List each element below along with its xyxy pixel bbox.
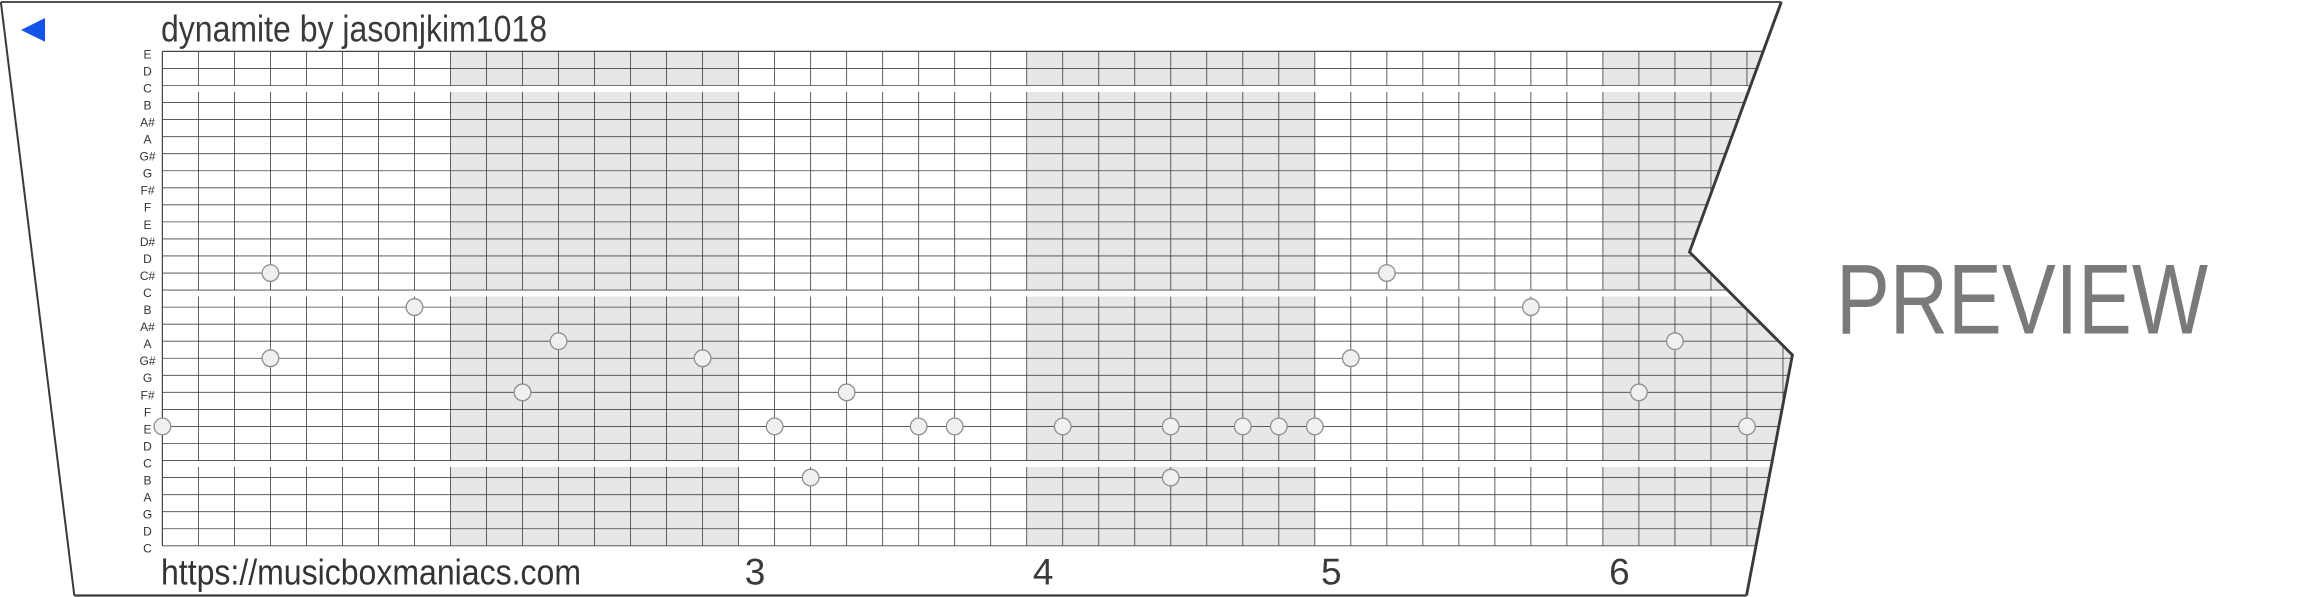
svg-text:D: D bbox=[143, 64, 152, 78]
svg-text:A: A bbox=[143, 491, 151, 505]
svg-text:6: 6 bbox=[1609, 552, 1630, 593]
svg-text:F#: F# bbox=[140, 184, 154, 198]
svg-text:A#: A# bbox=[140, 320, 155, 334]
svg-text:D: D bbox=[143, 525, 152, 539]
svg-text:C#: C# bbox=[140, 269, 156, 283]
svg-text:E: E bbox=[143, 422, 151, 436]
svg-text:G: G bbox=[143, 508, 152, 522]
svg-text:E: E bbox=[143, 218, 151, 232]
svg-text:G#: G# bbox=[139, 354, 155, 368]
svg-text:D: D bbox=[143, 439, 152, 453]
svg-text:4: 4 bbox=[1033, 552, 1054, 593]
svg-text:C: C bbox=[143, 542, 152, 556]
svg-text:D#: D# bbox=[140, 235, 156, 249]
svg-text:F: F bbox=[144, 405, 151, 419]
svg-text:G#: G# bbox=[139, 150, 155, 164]
svg-text:A: A bbox=[143, 133, 151, 147]
svg-text:B: B bbox=[143, 474, 151, 488]
svg-text:A: A bbox=[143, 337, 151, 351]
svg-text:dynamite by jasonjkim1018: dynamite by jasonjkim1018 bbox=[161, 9, 547, 50]
svg-text:C: C bbox=[143, 81, 152, 95]
svg-text:B: B bbox=[143, 98, 151, 112]
svg-text:C: C bbox=[143, 286, 152, 300]
svg-text:G: G bbox=[143, 371, 152, 385]
svg-text:C: C bbox=[143, 456, 152, 470]
svg-text:F: F bbox=[144, 201, 151, 215]
svg-text:F#: F# bbox=[140, 388, 154, 402]
svg-text:G: G bbox=[143, 167, 152, 181]
svg-text:PREVIEW: PREVIEW bbox=[1836, 244, 2208, 355]
svg-text:B: B bbox=[143, 303, 151, 317]
svg-text:3: 3 bbox=[745, 552, 766, 593]
svg-text:https://musicboxmaniacs.com: https://musicboxmaniacs.com bbox=[161, 552, 581, 593]
svg-text:5: 5 bbox=[1321, 552, 1342, 593]
svg-text:D: D bbox=[143, 252, 152, 266]
svg-text:E: E bbox=[143, 47, 151, 61]
svg-text:A#: A# bbox=[140, 115, 155, 129]
